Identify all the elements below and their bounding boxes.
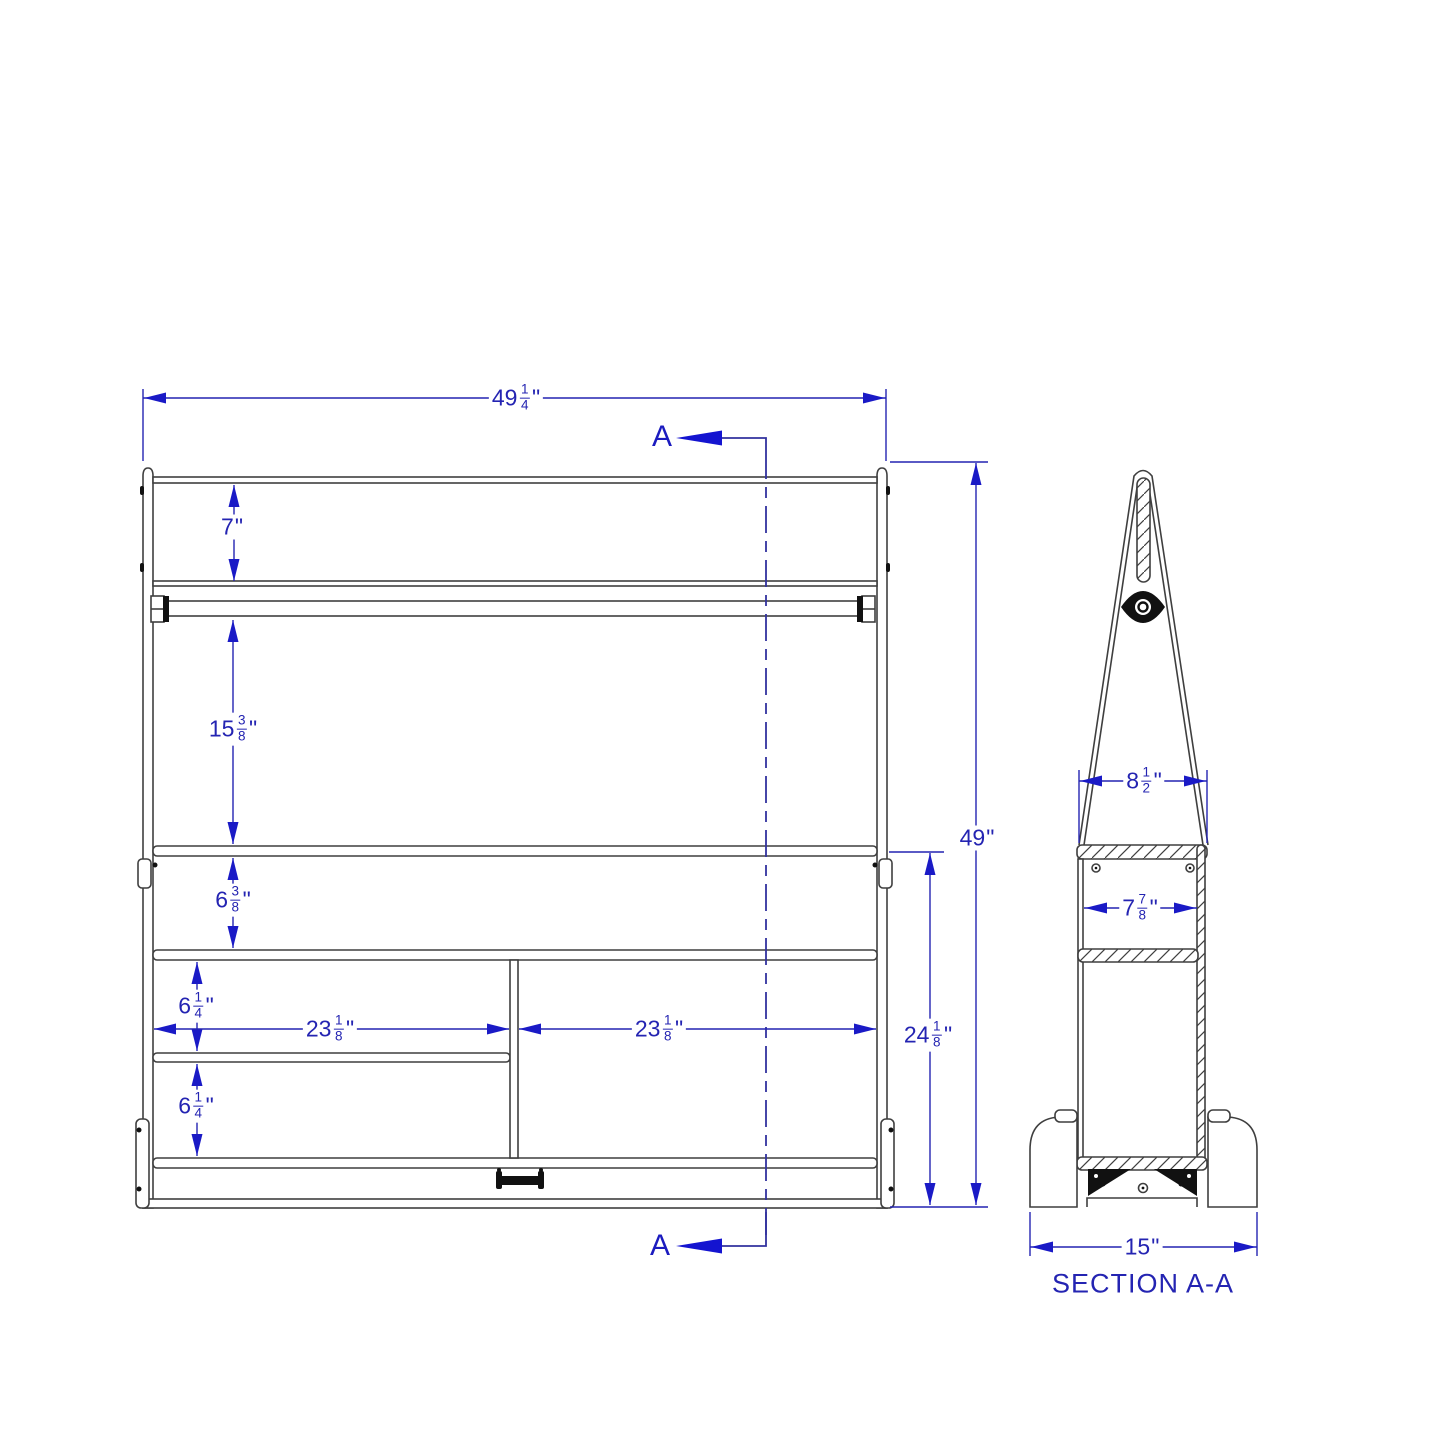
dim-label-shelf-depth: 778" xyxy=(1119,892,1160,925)
dim-label-base-depth: 15" xyxy=(1122,1235,1163,1260)
shelf-middle xyxy=(153,950,877,960)
section-marker-bottom: A xyxy=(648,1231,672,1261)
dim-label-top-rail: 7" xyxy=(218,515,246,540)
back-panel-section xyxy=(1197,845,1205,1167)
dim-label-overall-height: 49" xyxy=(957,826,998,851)
front-dimensions xyxy=(143,389,988,1207)
section-view xyxy=(1030,471,1257,1208)
hanger-rod xyxy=(168,601,858,616)
rod-bracket-left xyxy=(151,596,169,622)
dim-label-lower-section-height: 2418" xyxy=(901,1019,955,1052)
foot-right xyxy=(1208,1117,1257,1207)
post-screws xyxy=(140,486,890,572)
rail-tab-right xyxy=(1208,1110,1230,1122)
bottom-hardware xyxy=(496,1168,544,1189)
cut-line-bottom-leader xyxy=(722,1212,766,1246)
drawing-canvas: 4914" A A 7" 1538" 638" 614" 614" 2318" … xyxy=(0,0,1445,1445)
corner-bracket-left xyxy=(1088,1169,1131,1196)
rod-bracket-right xyxy=(857,596,875,622)
left-side-post xyxy=(143,468,153,1208)
front-view xyxy=(136,468,894,1208)
bottom-kick-rail xyxy=(143,1199,887,1208)
section-cut-line xyxy=(676,431,766,1254)
cut-arrow-bottom xyxy=(676,1239,722,1254)
handle-slot xyxy=(1137,478,1150,582)
corner-bracket-right xyxy=(1154,1169,1197,1196)
bottom-board-section xyxy=(1077,1157,1207,1170)
foot-bracket-right xyxy=(881,1119,894,1208)
dim-label-shelf-gap-mid: 614" xyxy=(175,990,216,1023)
board-screws xyxy=(1092,864,1194,872)
foot-left xyxy=(1030,1117,1077,1207)
dim-label-shelf-gap-top: 638" xyxy=(212,884,253,917)
foot-bracket-left xyxy=(136,1119,149,1208)
right-side-post xyxy=(877,468,887,1208)
front-edge-section xyxy=(1078,859,1083,1158)
center-divider xyxy=(510,960,518,1158)
upper-rail xyxy=(153,581,877,586)
shelf-top xyxy=(153,846,877,856)
dim-label-upper-width: 812" xyxy=(1123,765,1164,798)
base-recess xyxy=(1087,1198,1197,1207)
dim-label-overall-width: 4914" xyxy=(489,382,543,415)
top-rail-board xyxy=(153,477,877,483)
dim-label-shelf-gap-bottom: 614" xyxy=(175,1090,216,1123)
shelf-bottom xyxy=(153,1158,877,1168)
section-marker-top: A xyxy=(650,422,674,452)
dim-label-compartment-right: 2318" xyxy=(632,1013,686,1046)
dim-label-compartment-left: 2318" xyxy=(303,1013,357,1046)
dim-label-rod-to-shelf: 1538" xyxy=(206,713,260,746)
cut-arrow-top xyxy=(676,431,722,446)
mid-board-section xyxy=(1078,949,1198,962)
mounting-bracket-right xyxy=(873,859,893,888)
cut-line-top-leader xyxy=(722,438,766,452)
shelf-half-left xyxy=(153,1053,510,1062)
rail-tab-left xyxy=(1055,1110,1077,1122)
section-view-title: SECTION A-A xyxy=(1052,1271,1234,1298)
top-board-section xyxy=(1077,845,1207,859)
mounting-bracket-left xyxy=(138,859,158,888)
